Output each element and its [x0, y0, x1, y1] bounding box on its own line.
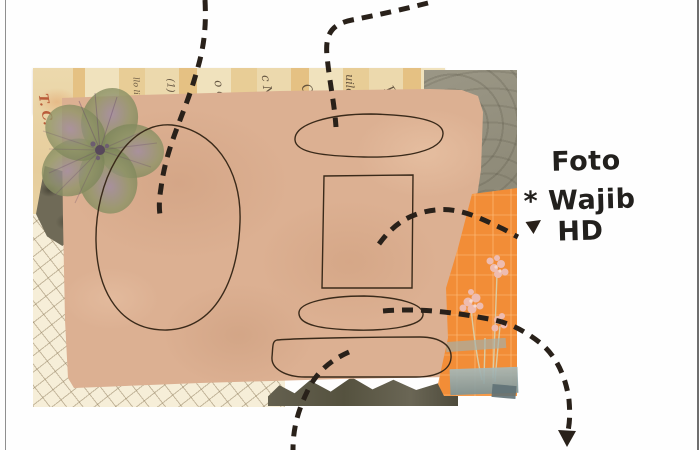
arrow-top-left — [159, 0, 205, 215]
arrow-bottom-right-head — [558, 430, 576, 447]
arrow-bottom-right — [383, 310, 570, 431]
bottom-pill-slot — [272, 337, 451, 377]
small-oval-slot — [299, 296, 423, 330]
rectangle-slot — [322, 175, 413, 288]
arrow-top-right — [327, 3, 428, 127]
arrow-bottom-center — [293, 352, 349, 450]
foto-annotation-line2: * Wajib HD — [511, 183, 649, 249]
scrapbook-template-canvas: llo liu (1) o a c N. Q uilo R L. T. C. — [0, 0, 700, 450]
top-pill-slot — [295, 114, 443, 157]
arrow-to-foto-note — [379, 210, 518, 244]
foto-annotation-line1: Foto — [538, 145, 635, 179]
